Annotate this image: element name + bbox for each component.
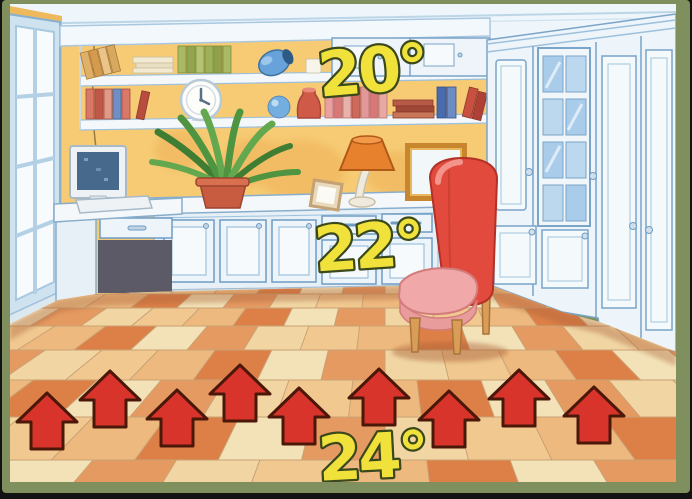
temperature-labels: 20° 22° 24° (312, 29, 430, 495)
picture-frame (310, 180, 342, 210)
mid-room-temperature-label: 22° (312, 206, 425, 286)
glass-cabinet-door (538, 48, 597, 226)
chair-leg (452, 320, 462, 354)
floor-tile (300, 326, 360, 350)
ceiling-temperature-label: 20° (315, 29, 429, 111)
floor-tile (284, 308, 339, 326)
desk-recess (98, 240, 172, 293)
chair-shadow (392, 342, 508, 362)
floor-tile (334, 308, 385, 326)
room-illustration: 20° 22° 24° (0, 0, 692, 499)
clock (181, 80, 221, 121)
chair-leg (410, 318, 420, 352)
plant-pot (200, 184, 246, 208)
blue-ball (268, 96, 290, 118)
